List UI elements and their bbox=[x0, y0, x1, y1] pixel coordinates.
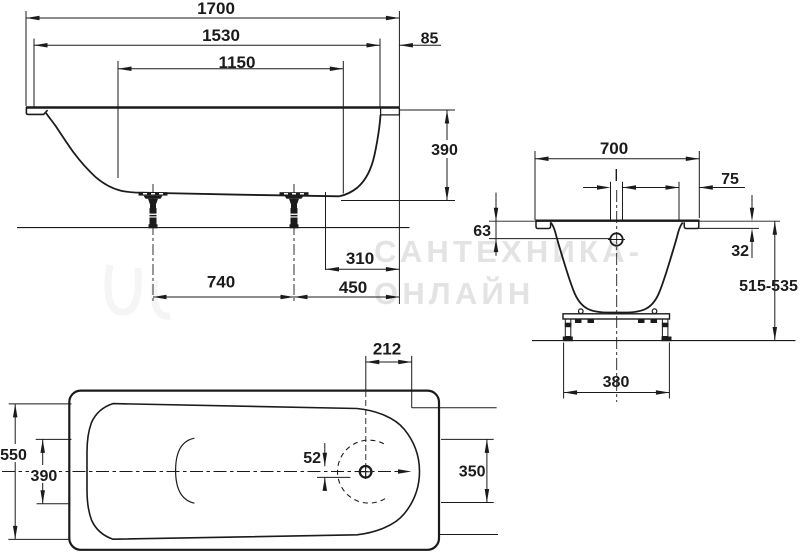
svg-text:32: 32 bbox=[731, 243, 749, 260]
svg-text:САНТЕХНИКА-: САНТЕХНИКА- bbox=[374, 234, 643, 269]
svg-text:380: 380 bbox=[603, 374, 630, 391]
svg-text:212: 212 bbox=[373, 340, 401, 359]
svg-text:310: 310 bbox=[346, 249, 374, 268]
svg-text:52: 52 bbox=[303, 450, 321, 467]
svg-text:75: 75 bbox=[721, 171, 739, 188]
svg-text:515-535: 515-535 bbox=[739, 278, 798, 295]
svg-text:450: 450 bbox=[339, 278, 367, 297]
svg-text:390: 390 bbox=[431, 142, 458, 159]
svg-text:350: 350 bbox=[459, 464, 486, 481]
svg-text:1700: 1700 bbox=[197, 0, 235, 18]
svg-text:550: 550 bbox=[0, 447, 27, 464]
svg-text:63: 63 bbox=[473, 223, 491, 240]
svg-text:740: 740 bbox=[207, 273, 235, 292]
svg-text:1150: 1150 bbox=[219, 53, 256, 72]
svg-text:85: 85 bbox=[421, 31, 439, 48]
svg-text:ОНЛАЙН: ОНЛАЙН bbox=[374, 275, 535, 311]
svg-text:700: 700 bbox=[600, 139, 628, 158]
svg-text:390: 390 bbox=[31, 468, 58, 485]
svg-text:1530: 1530 bbox=[202, 26, 240, 45]
